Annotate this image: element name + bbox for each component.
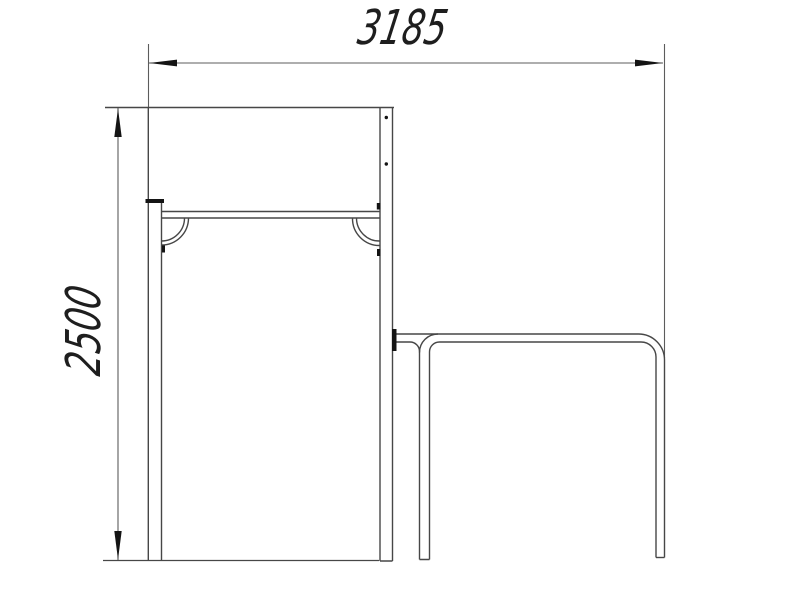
dim-arrow-up bbox=[114, 109, 121, 138]
dim-arrow-left bbox=[149, 60, 177, 67]
rail-bracket-left bbox=[162, 218, 189, 245]
dim-arrow-right bbox=[635, 60, 663, 67]
tabletop-bottom-right-and-leg-inner bbox=[430, 342, 657, 558]
weld-mark-rail-right bbox=[377, 203, 380, 210]
table bbox=[392, 329, 665, 560]
back-post bbox=[380, 108, 393, 562]
technical-drawing-canvas: 3185 2500 bbox=[0, 0, 800, 600]
shelter-frame bbox=[105, 108, 394, 562]
width-dimension-label: 3185 bbox=[354, 0, 452, 55]
bolt-dot-top bbox=[385, 116, 388, 119]
height-dimension-label: 2500 bbox=[56, 281, 112, 379]
bolt-dot-bottom bbox=[385, 162, 388, 165]
height-dimension: 2500 bbox=[56, 108, 122, 560]
tabletop-and-right-leg-outer bbox=[397, 334, 665, 558]
width-dimension: 3185 bbox=[149, 0, 665, 358]
dim-arrow-down bbox=[114, 531, 121, 560]
table-mount-plate bbox=[392, 329, 397, 351]
table-leg-left bbox=[420, 352, 430, 560]
tabletop-bottom-left-and-leg-outer bbox=[397, 342, 420, 560]
weld-mark-bracket-left bbox=[162, 246, 165, 253]
rail-bracket-right bbox=[352, 218, 380, 246]
front-post-cap bbox=[146, 199, 165, 203]
backrest-rail bbox=[162, 203, 381, 256]
drawing-sheet: 3185 2500 bbox=[0, 0, 800, 600]
weld-mark-bracket-right bbox=[377, 249, 380, 256]
